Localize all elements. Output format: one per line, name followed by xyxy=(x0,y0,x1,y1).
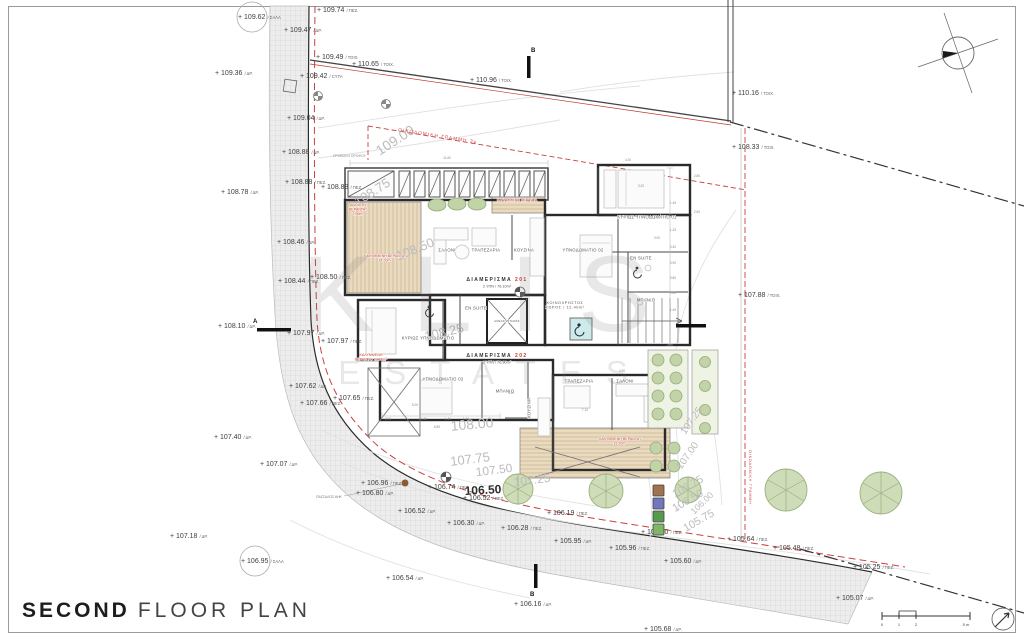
elevation-marker: + 106.96/ ΠΕΖ. xyxy=(361,480,402,487)
elevation-marker: + 105.64/ ΠΕΖ. xyxy=(727,536,768,543)
dimension-label: 3.20 xyxy=(638,184,644,188)
elevation-marker: + 106.52/ ΠΕΖ. xyxy=(463,495,504,502)
elevation-text: + 110.65/ ΤΟΙΧ. xyxy=(352,61,394,68)
building xyxy=(345,165,718,478)
elevation-marker: + 110.65/ ΤΟΙΧ. xyxy=(352,61,394,68)
apartment-label: ΔΙΑΜΕΡΙΣΜΑ2012 ΥΠΝ / 76.10m² xyxy=(466,277,527,289)
elevation-marker: + 108.46/ ΔΡ. xyxy=(277,239,315,246)
room-label: ΑΝΕΛΚΥΣΤΗΡΑΣ xyxy=(494,319,520,323)
elevation-text: + 105.48/ ΠΕΖ. xyxy=(773,545,814,552)
elevation-text: + 108.10/ ΔΡ. xyxy=(218,323,256,330)
elevation-marker: + 109.04/ ΔΡ. xyxy=(287,115,325,122)
elevation-text: + 105.25/ ΠΕΖ. xyxy=(853,564,894,571)
dimension-label: 1.40 xyxy=(445,417,451,421)
elevation-text: + 107.66/ ΠΕΖ. xyxy=(300,400,341,407)
elevation-text: + 109.36/ ΔΡ. xyxy=(215,70,253,77)
room-label: ΚΥΡΙΩΣ ΥΠΝΟΔΩΜΑΤΙΟ xyxy=(402,336,455,341)
elevation-text: + 108.33/ ΤΟΙΧ. xyxy=(732,144,775,151)
road-band xyxy=(269,6,872,624)
elevation-text: + 107.18/ ΔΡ. xyxy=(170,533,208,540)
dimension-label: 0.40 xyxy=(670,245,676,249)
elevation-marker: + 106.80/ ΔΡ. xyxy=(356,490,394,497)
contour-label: 108.00 xyxy=(450,414,494,434)
elevation-text: + 107.40/ ΔΡ. xyxy=(214,434,252,441)
elevation-text: + 105.64/ ΠΕΖ. xyxy=(727,536,768,543)
room-label: ΣΑΛΟΝΙ xyxy=(616,379,633,384)
apartment-name: ΔΙΑΜΕΡΙΣΜΑ202 xyxy=(466,353,527,359)
elevation-marker: + 105.68/ ΔΡ. xyxy=(644,626,682,633)
elevation-marker: + 108.33/ ΤΟΙΧ. xyxy=(732,144,775,151)
elevation-text: + 106.52/ ΔΡ. xyxy=(398,508,436,515)
room-label: ΚΟΥΖΙΝΑ xyxy=(527,398,532,418)
elevation-marker: + 108.88/ ΠΕΖ. xyxy=(321,184,362,191)
elevation-text: + 109.04/ ΔΡ. xyxy=(287,115,325,122)
scale-label: 1 xyxy=(898,622,901,627)
elevation-marker: + 107.97/ ΠΕΖ. xyxy=(321,338,362,345)
legend-swatch xyxy=(653,511,664,522)
elevation-text: + 107.97/ ΠΕΖ. xyxy=(321,338,362,345)
material-legend xyxy=(653,485,664,535)
floor-plan-drawing: 109.00108.75108.50108.25108.00107.75107.… xyxy=(0,0,1024,639)
floor-plan-sheet: 109.00108.75108.50108.25108.00107.75107.… xyxy=(0,0,1024,639)
top-wall xyxy=(310,60,731,121)
accessible-lift xyxy=(570,318,592,340)
title-rest: FLOOR PLAN xyxy=(138,599,311,622)
elevation-text: + 106.52/ ΠΕΖ. xyxy=(463,495,504,502)
elevation-marker: + 105.60/ ΔΡ. xyxy=(664,558,702,565)
elevation-marker: + 107.97/ ΔΡ. xyxy=(287,330,325,337)
section-letter: A xyxy=(253,319,258,325)
drawing-title: SECONDFLOOR PLAN xyxy=(22,599,311,623)
dimension-label: 7.10 xyxy=(582,408,588,412)
elevation-text: + 105.96/ ΠΕΖ. xyxy=(609,545,650,552)
dimension-label: 1.80 xyxy=(421,417,427,421)
room-label: ΜΠΑΝΙΟ xyxy=(637,298,656,303)
apartment-label: ΔΙΑΜΕΡΙΣΜΑ2022 ΥΠΝ / 76.80m² xyxy=(466,353,527,365)
apartment-info: 2 ΥΠΝ / 76.10m² xyxy=(483,285,512,289)
elevation-text: + 107.62/ ΔΡ. xyxy=(289,383,327,390)
reference-circle-icon xyxy=(992,608,1014,630)
dimension-label: 1.25 xyxy=(670,228,676,232)
room-label: ΤΡΑΠΕΖΑΡΙΑ xyxy=(472,248,501,253)
apartment-name: ΔΙΑΜΕΡΙΣΜΑ201 xyxy=(466,277,527,283)
elevation-text: + 109.62/ ΣΑΛΑ xyxy=(238,14,281,21)
dimension-label: 6.80 xyxy=(434,425,440,429)
legend-swatch xyxy=(653,485,664,496)
elevation-marker: + 110.16/ ΤΟΙΧ. xyxy=(732,90,774,97)
elevation-marker: + 107.40/ ΔΡ. xyxy=(214,434,252,441)
apartment-info: 2 ΥΠΝ / 76.80m² xyxy=(483,361,512,365)
stairs xyxy=(622,298,682,343)
contour-label: 107.25 xyxy=(513,471,551,489)
elevation-marker: + 108.10/ ΔΡ. xyxy=(218,323,256,330)
elevation-marker: + 108.88/ ΔΡ. xyxy=(282,149,320,156)
elevation-marker: + 105.95/ ΔΡ. xyxy=(554,538,592,545)
elevation-marker: + 108.44/ ΠΕΖ. xyxy=(278,278,319,285)
section-letter: B xyxy=(530,592,535,598)
elevation-text: + 105.60/ ΔΡ. xyxy=(664,558,702,565)
elevation-text: + 105.07/ ΔΡ. xyxy=(836,595,874,602)
elevation-text: + 109.49/ ΤΟΙΧ. xyxy=(316,54,359,61)
elevation-text: + 106.54/ ΔΡ. xyxy=(386,575,424,582)
elevation-text: + 110.96/ ΤΟΙΧ. xyxy=(470,77,512,84)
room-label: ΚΟΥΖΙΝΑ xyxy=(514,248,534,253)
dimension-label: 2.00 xyxy=(385,417,391,421)
elevation-marker: + 109.74/ ΠΕΖ. xyxy=(317,7,358,14)
dimension-label: 2.00 xyxy=(670,291,676,295)
north-arrow-icon xyxy=(918,13,998,93)
dimension-label: 4.30 xyxy=(625,158,631,162)
room-label: EN SUITE xyxy=(630,256,652,261)
elevation-text: + 108.44/ ΠΕΖ. xyxy=(278,278,319,285)
elevation-marker: + 106.54/ ΔΡ. xyxy=(386,575,424,582)
dimension-label: 1.45 xyxy=(670,308,676,312)
dimension-label: 3.00 xyxy=(654,236,660,240)
scale-labels: 0125 m xyxy=(881,622,970,627)
dimension-label: 2.60 xyxy=(694,210,700,214)
legend-swatch xyxy=(653,498,664,509)
contour-label: 109.00 xyxy=(373,122,418,159)
dimension-label: 4.90 xyxy=(619,369,625,373)
neighbor-boundary-top xyxy=(730,122,1024,206)
room-label: ΚΥΡΙΩΣ ΥΠΝΟΔΩΜΑΤΙΟ 01 xyxy=(617,215,677,220)
legend-swatch xyxy=(653,524,664,535)
elevation-text: + 107.97/ ΔΡ. xyxy=(287,330,325,337)
elevation-text: + 107.07/ ΔΡ. xyxy=(260,461,298,468)
title-bold: SECOND xyxy=(22,599,130,622)
elevation-text: + 108.46/ ΔΡ. xyxy=(277,239,315,246)
elevation-marker: + 106.74/ ΠΕΖ. xyxy=(428,484,469,491)
dimension-label: 1.30 xyxy=(463,417,469,421)
scale-bar xyxy=(882,611,970,620)
elevation-marker: + 107.62/ ΔΡ. xyxy=(289,383,327,390)
elevation-marker: + 105.48/ ΠΕΖ. xyxy=(773,545,814,552)
elevation-marker: + 109.47/ ΔΡ. xyxy=(284,27,322,34)
scale-label: 2 xyxy=(915,622,918,627)
veranda-label: ΚΑΛΥΜΜΕΝΗ ΒΕΡΑΝΤΑ xyxy=(497,198,538,202)
common-area-label: ΚΟΙΝΟΧΡΗΣΤΟΣΧΩΡΟΣ / 12.40m² xyxy=(545,301,584,310)
floor-projection-label: ΠΡΟΒΟΛΗ ΟΡΟΦΟΥ xyxy=(333,154,367,158)
elevation-text: + 106.30/ ΔΡ. xyxy=(447,520,485,527)
elevation-text: + 106.16/ ΔΡ. xyxy=(514,601,552,608)
elevation-marker: + 110.96/ ΤΟΙΧ. xyxy=(470,77,512,84)
elevation-marker: + 106.95/ ΣΑΛΑ xyxy=(240,546,284,576)
elevation-marker: + 105.96/ ΠΕΖ. xyxy=(609,545,650,552)
elevation-text: + 107.88/ ΤΟΙΧ. xyxy=(738,292,781,299)
elevation-marker: + 105.25/ ΠΕΖ. xyxy=(853,564,894,571)
elevation-text: + 106.19/ ΠΕΖ. xyxy=(547,510,588,517)
elevation-marker: + 107.07/ ΔΡ. xyxy=(260,461,298,468)
elevation-text: + 109.42/ CYTA xyxy=(300,73,343,80)
pole-label: ΠΑΣΣΑΛΟΣ ΑΗΚ xyxy=(316,495,343,499)
elevation-marker: + 106.52/ ΔΡ. xyxy=(398,508,436,515)
elevation-marker: + 106.28/ ΠΕΖ. xyxy=(501,525,542,532)
dimension-label: 0.90 xyxy=(670,261,676,265)
elevation-marker: + 106.16/ ΔΡ. xyxy=(514,601,552,608)
elevation-text: + 105.68/ ΔΡ. xyxy=(644,626,682,633)
room-label: ΥΠΝΟΔΩΜΑΤΙΟ 02 xyxy=(563,248,604,253)
elevation-text: + 106.80/ ΔΡ. xyxy=(356,490,394,497)
dimension-label: 1.45 xyxy=(670,201,676,205)
right-wall-top xyxy=(728,0,733,122)
elevation-text: + 109.74/ ΠΕΖ. xyxy=(317,7,358,14)
dimension-label: 5.00 xyxy=(412,403,418,407)
elevation-marker: + 107.88/ ΤΟΙΧ. xyxy=(738,292,781,299)
elevation-marker: + 107.18/ ΔΡ. xyxy=(170,533,208,540)
elevation-text: + 106.28/ ΠΕΖ. xyxy=(501,525,542,532)
scale-label: 0 xyxy=(881,622,884,627)
elevation-text: + 108.88/ ΔΡ. xyxy=(282,149,320,156)
section-letter: B xyxy=(531,48,536,54)
elevation-marker: + 109.36/ ΔΡ. xyxy=(215,70,253,77)
elevation-marker: + 108.78/ ΔΡ. xyxy=(221,189,259,196)
room-label: ΥΠΝΟΔΩΜΑΤΙΟ 02 xyxy=(423,377,464,382)
elevation-marker: + 109.42/ CYTA xyxy=(300,73,343,80)
scale-label: 5 m xyxy=(963,622,970,627)
dimension-label: 2.80 xyxy=(694,174,700,178)
elevation-text: + 110.16/ ΤΟΙΧ. xyxy=(732,90,774,97)
room-label: EN SUITE xyxy=(465,306,487,311)
elevation-text: + 108.78/ ΔΡ. xyxy=(221,189,259,196)
elevation-marker: + 107.66/ ΠΕΖ. xyxy=(300,400,341,407)
elevation-text: + 106.95/ ΣΑΛΑ xyxy=(241,558,284,565)
dimension-label: 0.80 xyxy=(670,276,676,280)
elevation-text: + 105.95/ ΔΡ. xyxy=(554,538,592,545)
elevation-marker: + 109.49/ ΤΟΙΧ. xyxy=(316,54,359,61)
room-label: ΤΡΑΠΕΖΑΡΙΑ xyxy=(565,379,594,384)
dimension-label: 3.10 xyxy=(508,391,514,395)
manhole-icon xyxy=(314,92,391,109)
elevation-marker: + 105.07/ ΔΡ. xyxy=(836,595,874,602)
dimension-label: 11.60 xyxy=(443,156,451,160)
room-label: ΣΑΛΟΝΙ xyxy=(438,248,455,253)
elevation-text: + 106.74/ ΠΕΖ. xyxy=(428,484,469,491)
elevation-text: + 108.88/ ΠΕΖ. xyxy=(321,184,362,191)
elevation-marker: + 106.30/ ΔΡ. xyxy=(447,520,485,527)
elevation-text: + 106.96/ ΠΕΖ. xyxy=(361,480,402,487)
building-line-right-label: ΟΙΚΟΔΟΜΙΚΗ ΓΡΑΜΜΗ xyxy=(748,450,752,505)
pole-dot xyxy=(402,480,409,487)
elevation-marker: + 106.19/ ΠΕΖ. xyxy=(547,510,588,517)
elevation-text: + 109.47/ ΔΡ. xyxy=(284,27,322,34)
